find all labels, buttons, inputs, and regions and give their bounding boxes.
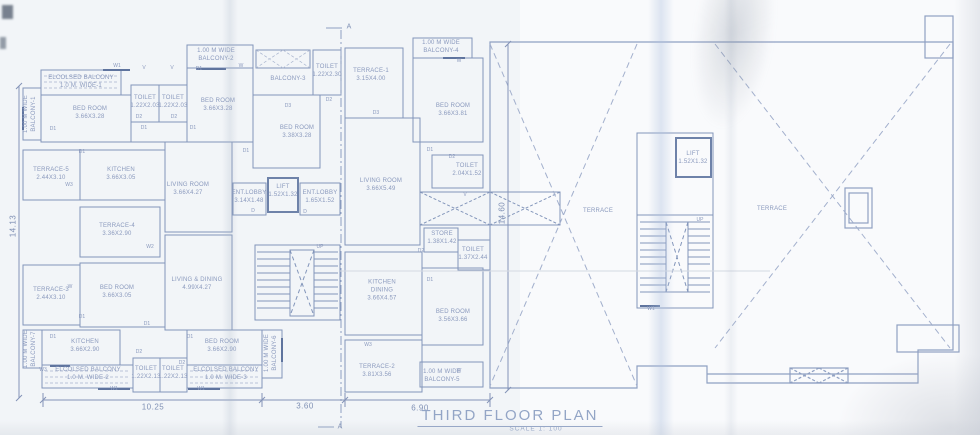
room-name: 1.00 M WIDE <box>23 95 31 133</box>
room-name: LIVING ROOM <box>167 182 209 190</box>
label-ent-lobby-right: ENT.LOBBY1.65X1.52 <box>303 190 338 206</box>
room-name: BED ROOM <box>436 309 470 317</box>
wall-tag: D3 <box>285 103 291 109</box>
wall-tag: D2 <box>179 360 185 366</box>
room-name: TOILET <box>312 64 341 72</box>
label-terrace-left: TERRACE <box>583 208 613 216</box>
room-dims: 3.66X3.28 <box>73 114 107 122</box>
wall-tag: W1 <box>647 306 655 312</box>
room-dims: BALCONY-5 <box>423 377 461 385</box>
room-dims: 3.38X3.28 <box>280 133 314 141</box>
room-name: TOILET <box>158 366 187 374</box>
wall-tag: D2 <box>449 154 455 160</box>
stair-up-tag: UP <box>697 217 704 223</box>
room-name: BED ROOM <box>280 125 314 133</box>
room-name: 1.00 M WIDE <box>23 330 31 368</box>
room-dims: 3.66X3.05 <box>100 293 134 301</box>
middle-unit-walls <box>345 38 560 392</box>
wall-tag: D1 <box>50 334 56 340</box>
wall-tag: W <box>457 368 462 374</box>
room-name: TOILET <box>130 95 159 103</box>
wall-tag: W <box>239 63 244 69</box>
dim-width-left: 10.25 <box>142 403 165 412</box>
wall-tag: D1 <box>427 147 433 153</box>
label-terrace-4: TERRACE-43.36X2.90 <box>99 223 135 239</box>
room-name: LIFT <box>268 184 297 192</box>
label-bedroom-m2: BED ROOM3.56X3.66 <box>436 309 470 325</box>
label-toilet-b2: TOILET1.22X2.13 <box>158 366 187 382</box>
room-name: ENT.LOBBY <box>232 190 267 198</box>
room-dims: 3.66X4.57 <box>364 295 400 303</box>
wall-tag: D1 <box>79 314 85 320</box>
section-line <box>318 28 342 428</box>
label-bedroom-b: BED ROOM3.66X2.90 <box>205 339 239 355</box>
room-name: TERRACE-4 <box>99 223 135 231</box>
wall-tag: V <box>463 192 466 198</box>
blueprint-scan: ELCOLSED BALCONY1.0 M. WIDE-1 BED ROOM3.… <box>0 0 980 435</box>
label-terrace-1: TERRACE-13.15X4.00 <box>353 68 389 84</box>
section-marker-top: A <box>347 24 352 31</box>
room-name: BED ROOM <box>100 285 134 293</box>
wall-tag: W2 <box>146 244 154 250</box>
label-bedroom-a2: BED ROOM3.66X3.28 <box>201 98 235 114</box>
room-name: TOILET <box>131 366 160 374</box>
wall-tag: W <box>457 58 462 64</box>
wall-tag: D1 <box>243 148 249 154</box>
room-name: 1.00 M WIDE <box>264 334 272 372</box>
room-name: TERRACE-3 <box>33 287 69 295</box>
room-name: BED ROOM <box>436 103 470 111</box>
plan-scale: SCALE 1: 100 <box>509 426 562 433</box>
label-toilet-m2: TOILET1.37X2.44 <box>458 247 487 263</box>
room-name: ELCOLSED BALCONY <box>55 367 121 375</box>
room-dims: 3.66X4.27 <box>167 190 209 198</box>
room-dims: 1.22X2.30 <box>312 72 341 80</box>
label-bedroom-a1: BED ROOM3.66X3.28 <box>73 106 107 122</box>
room-name: TOILET <box>158 95 187 103</box>
label-kitchen-a: KITCHEN3.66X3.05 <box>106 167 135 183</box>
room-name: TERRACE-5 <box>33 167 69 175</box>
label-toilet-a3: TOILET1.22X2.30 <box>312 64 341 80</box>
wall-tag: W1 <box>197 386 205 392</box>
wall-tag: D1 <box>190 125 196 131</box>
label-toilet-b1: TOILET1.22X2.13 <box>131 366 160 382</box>
label-enclosed-balcony-2: ELCOLSED BALCONY1.0 M. WIDE-2 <box>55 367 121 383</box>
label-living-room-a: LIVING ROOM3.66X4.27 <box>167 182 209 198</box>
wall-tag: V <box>170 65 173 71</box>
room-dims: 3.56X3.66 <box>436 317 470 325</box>
wall-tag: D2 <box>326 97 332 103</box>
room-name: BED ROOM <box>73 106 107 114</box>
label-terrace-5: TERRACE-52.44X3.10 <box>33 167 69 183</box>
room-dims: 1.22X2.13 <box>158 374 187 382</box>
label-kitchen-dining: KITCHEN DINING3.66X4.57 <box>364 279 400 302</box>
wall-tag: W3 <box>364 342 372 348</box>
label-lift-right: LIFT1.52X1.32 <box>678 151 707 167</box>
wall-tag: D2 <box>136 349 142 355</box>
room-dims: 3.66X3.05 <box>106 175 135 183</box>
wall-tag: D1 <box>427 277 433 283</box>
room-dims: 3.66X2.90 <box>70 347 99 355</box>
room-name: TOILET <box>452 163 481 171</box>
room-name: TERRACE-1 <box>353 68 389 76</box>
wall-tag: D1 <box>50 126 56 132</box>
room-name: KITCHEN <box>106 167 135 175</box>
room-dims: 1.22X2.13 <box>131 374 160 382</box>
label-living-dining: LIVING & DINING4.99X4.27 <box>171 277 222 293</box>
terrace-diagonals <box>490 44 950 386</box>
wall-tag: D <box>251 208 255 214</box>
wall-tag: D1 <box>79 149 85 155</box>
room-name: KITCHEN <box>70 339 99 347</box>
label-balcony-4: 1.00 M WIDEBALCONY-4 <box>422 40 460 56</box>
room-name: ELCOLSED BALCONY <box>193 367 259 375</box>
label-enclosed-balcony-3: ELCOLSED BALCONY1.0 M. WIDE-3 <box>193 367 259 383</box>
label-ent-lobby-left: ENT.LOBBY3.14X1.48 <box>232 190 267 206</box>
section-marker-bottom: A <box>338 424 343 431</box>
label-terrace-3: TERRACE-32.44X3.10 <box>33 287 69 303</box>
room-name: TERRACE <box>583 208 613 216</box>
dim-overall-height: 14.13 <box>9 215 18 238</box>
wall-tag: D2 <box>136 114 142 120</box>
room-dims: BALCONY-7 <box>31 330 39 368</box>
wall-tag: W <box>68 284 73 290</box>
room-dims: BALCONY-2 <box>197 56 235 64</box>
wall-tag: W3 <box>65 182 73 188</box>
room-name: ENT.LOBBY <box>303 190 338 198</box>
room-dims: 1.52X1.32 <box>268 192 297 200</box>
room-dims: 1.0 M. WIDE-1 <box>48 83 114 91</box>
room-dims: BALCONY-6 <box>272 334 280 372</box>
room-dims: 2.04X1.52 <box>452 171 481 179</box>
label-lift-left: LIFT1.52X1.32 <box>268 184 297 200</box>
label-toilet-a1: TOILET1.22X2.03 <box>130 95 159 111</box>
room-dims: 3.36X2.90 <box>99 231 135 239</box>
label-bedroom-m1: BED ROOM3.66X3.81 <box>436 103 470 119</box>
room-name: LIVING & DINING <box>171 277 222 285</box>
room-name: 1.00 M WIDE <box>422 40 460 48</box>
label-kitchen-b: KITCHEN3.66X2.90 <box>70 339 99 355</box>
room-dims: 3.15X4.00 <box>353 76 389 84</box>
label-toilet-m1: TOILET2.04X1.52 <box>452 163 481 179</box>
label-bedroom-a4: BED ROOM3.66X3.05 <box>100 285 134 301</box>
wall-tag: D1 <box>187 334 193 340</box>
room-dims: 1.0 M. WIDE-3 <box>193 375 259 383</box>
plan-title: THIRD FLOOR PLAN <box>417 407 602 427</box>
label-balcony-2: 1.00 M WIDEBALCONY-2 <box>197 48 235 64</box>
label-bedroom-a3: BED ROOM3.38X3.28 <box>280 125 314 141</box>
room-name: LIVING ROOM <box>360 178 402 186</box>
room-name: ELCOLSED BALCONY <box>48 75 114 83</box>
room-name: 1.00 M WIDE <box>423 369 461 377</box>
wall-tag: W1 <box>113 63 121 69</box>
label-toilet-a2: TOILET1.22X2.03 <box>158 95 187 111</box>
dim-mid-height: 14.60 <box>498 202 507 225</box>
room-dims: 3.66X3.81 <box>436 111 470 119</box>
room-dims: 2.44X3.10 <box>33 175 69 183</box>
room-name: TERRACE <box>757 206 787 214</box>
wall-tag: D1 <box>141 125 147 131</box>
label-living-room-m: LIVING ROOM3.66X5.49 <box>360 178 402 194</box>
room-name: 1.00 M WIDE <box>197 48 235 56</box>
room-dims: 3.81X3.56 <box>359 372 395 380</box>
label-balcony-5: 1.00 M WIDEBALCONY-5 <box>423 369 461 385</box>
wall-tag: D <box>303 209 307 215</box>
wall-tag: V <box>142 65 145 71</box>
label-balcony-1: 1.00 M WIDEBALCONY-1 <box>23 95 39 133</box>
label-enclosed-balcony-1: ELCOLSED BALCONY1.0 M. WIDE-1 <box>48 75 114 91</box>
room-dims: 1.37X2.44 <box>458 255 487 263</box>
wall-tag: D2 <box>418 248 424 254</box>
label-balcony-7: 1.00 M WIDEBALCONY-7 <box>23 330 39 368</box>
label-terrace-right: TERRACE <box>757 206 787 214</box>
room-dims: 2.44X3.10 <box>33 295 69 303</box>
room-dims: 1.22X2.03 <box>130 103 159 111</box>
room-name: STORE <box>427 231 456 239</box>
wall-tag: D1 <box>144 321 150 327</box>
room-dims: 1.0 M. WIDE-2 <box>55 375 121 383</box>
label-balcony-3: BALCONY-3 <box>270 76 305 84</box>
room-dims: 3.14X1.48 <box>232 198 267 206</box>
wall-tag: W3 <box>39 367 47 373</box>
wall-tag: D2 <box>171 114 177 120</box>
room-name: TERRACE-2 <box>359 364 395 372</box>
room-dims: 1.22X2.03 <box>158 103 187 111</box>
room-name: LIFT <box>678 151 707 159</box>
stair-up-tag: UP <box>317 244 324 250</box>
room-dims: 3.66X5.49 <box>360 186 402 194</box>
room-dims: BALCONY-4 <box>422 48 460 56</box>
room-dims: 1.38X1.42 <box>427 239 456 247</box>
room-name: KITCHEN DINING <box>364 279 400 295</box>
wall-tag: W1 <box>110 386 118 392</box>
label-store: STORE1.38X1.42 <box>427 231 456 247</box>
room-dims: BALCONY-1 <box>31 95 39 133</box>
room-name: BED ROOM <box>205 339 239 347</box>
wall-tag: D1 <box>196 66 202 72</box>
label-balcony-6: 1.00 M WIDEBALCONY-6 <box>264 334 280 372</box>
wall-tag: D3 <box>373 110 379 116</box>
room-dims: 4.99X4.27 <box>171 285 222 293</box>
room-name: BALCONY-3 <box>270 76 305 84</box>
label-terrace-2: TERRACE-23.81X3.56 <box>359 364 395 380</box>
room-dims: 1.65X1.52 <box>303 198 338 206</box>
room-dims: 3.66X2.90 <box>205 347 239 355</box>
room-name: BED ROOM <box>201 98 235 106</box>
room-dims: 3.66X3.28 <box>201 106 235 114</box>
room-name: TOILET <box>458 247 487 255</box>
dim-width-mid: 3.60 <box>296 402 314 411</box>
room-dims: 1.52X1.32 <box>678 159 707 167</box>
